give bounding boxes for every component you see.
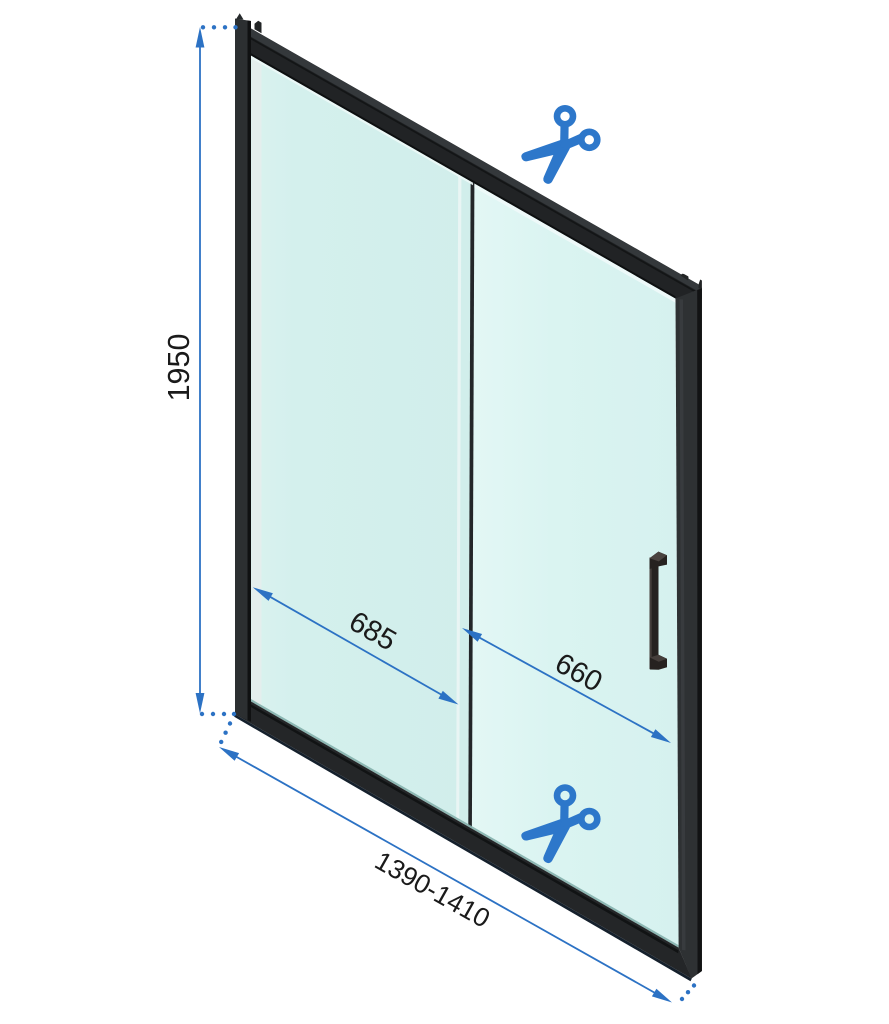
svg-text:1950: 1950 (162, 334, 196, 402)
